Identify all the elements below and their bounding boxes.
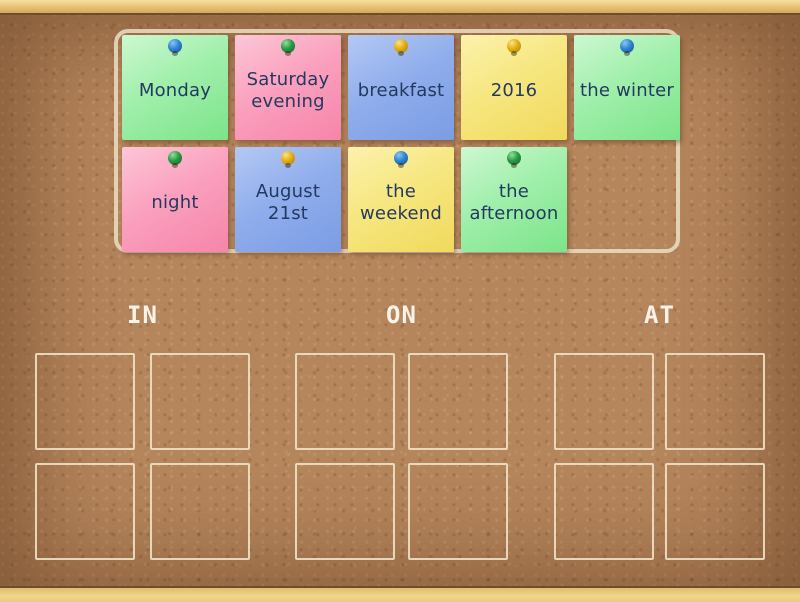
pushpin-icon xyxy=(507,39,521,53)
card-text: the weekend xyxy=(348,179,454,225)
drop-slot-at-2[interactable] xyxy=(665,353,765,450)
card-breakfast[interactable]: breakfast xyxy=(348,35,454,140)
drop-slot-in-2[interactable] xyxy=(150,353,250,450)
drop-slot-on-1[interactable] xyxy=(295,353,395,450)
pushpin-icon xyxy=(281,151,295,165)
drop-slot-on-2[interactable] xyxy=(408,353,508,450)
corkboard: Monday Saturday evening breakfast 2016 t… xyxy=(0,0,800,600)
wood-frame-top xyxy=(0,0,800,15)
pushpin-icon xyxy=(620,39,634,53)
pushpin-icon xyxy=(168,39,182,53)
card-text: night xyxy=(147,190,202,215)
card-monday[interactable]: Monday xyxy=(122,35,228,140)
pushpin-icon xyxy=(281,39,295,53)
drop-slot-in-3[interactable] xyxy=(35,463,135,560)
drop-slot-in-4[interactable] xyxy=(150,463,250,560)
category-label-in: IN xyxy=(35,301,250,333)
card-text: Monday xyxy=(135,78,215,103)
category-label-at: AT xyxy=(554,301,765,333)
card-august-21st[interactable]: August 21st xyxy=(235,147,341,252)
card-text: the afternoon xyxy=(461,179,567,225)
card-text: 2016 xyxy=(487,78,542,103)
drop-slot-at-1[interactable] xyxy=(554,353,654,450)
pushpin-icon xyxy=(168,151,182,165)
card-the-afternoon[interactable]: the afternoon xyxy=(461,147,567,252)
pushpin-icon xyxy=(394,39,408,53)
drop-slot-in-1[interactable] xyxy=(35,353,135,450)
card-night[interactable]: night xyxy=(122,147,228,252)
card-the-weekend[interactable]: the weekend xyxy=(348,147,454,252)
drop-slot-at-3[interactable] xyxy=(554,463,654,560)
card-text: August 21st xyxy=(235,179,341,225)
pushpin-icon xyxy=(394,151,408,165)
card-text: breakfast xyxy=(354,78,449,103)
drop-slot-on-3[interactable] xyxy=(295,463,395,560)
drop-slot-at-4[interactable] xyxy=(665,463,765,560)
drop-slot-on-4[interactable] xyxy=(408,463,508,560)
card-2016[interactable]: 2016 xyxy=(461,35,567,140)
category-label-on: ON xyxy=(295,301,508,333)
card-saturday-evening[interactable]: Saturday evening xyxy=(235,35,341,140)
card-text: Saturday evening xyxy=(235,67,341,113)
card-the-winter[interactable]: the winter xyxy=(574,35,680,140)
pushpin-icon xyxy=(507,151,521,165)
card-text: the winter xyxy=(576,78,678,103)
